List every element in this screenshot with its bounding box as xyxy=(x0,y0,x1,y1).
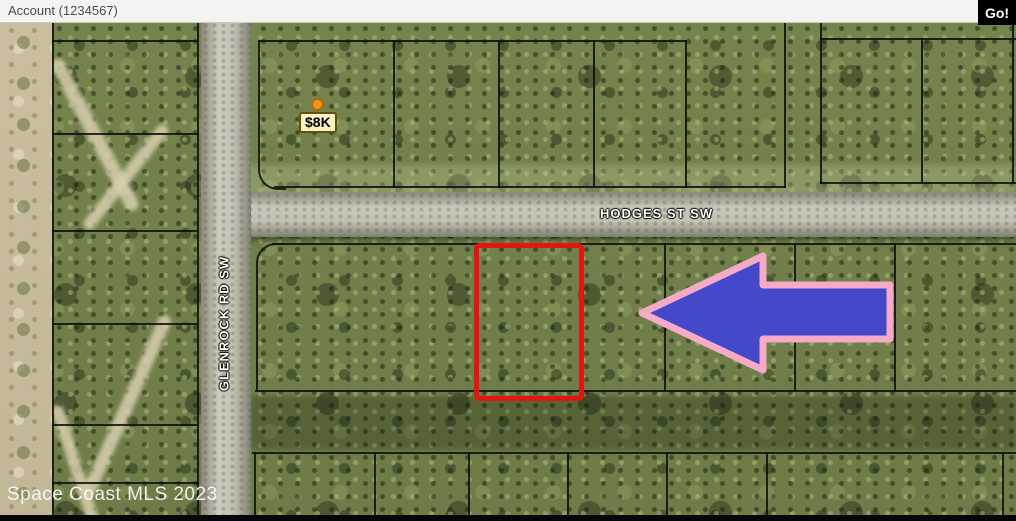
parcel-line xyxy=(1002,452,1004,515)
parcel-line xyxy=(784,22,786,188)
tree-shadow-band xyxy=(251,396,1016,450)
parcel-line xyxy=(794,243,796,392)
parcel-line xyxy=(894,243,896,392)
parcel-line xyxy=(1012,22,1014,184)
parcel-line xyxy=(393,40,395,188)
parcel-line xyxy=(468,452,470,515)
parcel-line xyxy=(197,22,199,515)
go-button[interactable]: Go! xyxy=(978,0,1016,25)
parcel-line xyxy=(52,424,199,426)
parcel-line xyxy=(254,452,256,515)
bottom-letterbox xyxy=(0,515,1016,521)
sandy-area xyxy=(0,22,52,521)
parcel-line xyxy=(52,22,54,515)
parcel-corner xyxy=(258,40,286,190)
parcel-line xyxy=(820,38,1016,40)
parcel-corner xyxy=(256,243,284,392)
parcel-line xyxy=(666,452,668,515)
parcel-line xyxy=(272,243,1016,245)
parcel-line xyxy=(374,452,376,515)
grass-band xyxy=(240,165,1016,193)
parcel-line xyxy=(52,323,199,325)
parcel-line xyxy=(52,230,199,232)
arrow-shape xyxy=(642,256,890,370)
dirt-trail xyxy=(49,57,141,214)
parcel-line xyxy=(820,22,822,184)
parcel-line xyxy=(820,182,1016,184)
account-label: Account (1234567) xyxy=(8,0,118,21)
parcel-line xyxy=(567,452,569,515)
street-label-hodges: HODGES ST SW xyxy=(600,206,713,221)
parcel-line xyxy=(498,40,500,188)
parcel-line xyxy=(664,243,666,392)
parcel-line xyxy=(685,40,687,188)
subject-parcel-outline xyxy=(474,243,584,401)
parcel-line xyxy=(593,40,595,188)
price-marker-label[interactable]: $8K xyxy=(299,112,337,133)
parcel-line xyxy=(766,452,768,515)
map-canvas[interactable]: HODGES ST SW GLENROCK RD SW $8K Space Co… xyxy=(0,22,1016,521)
parcel-line xyxy=(274,186,786,188)
mls-watermark: Space Coast MLS 2023 xyxy=(7,484,218,506)
street-label-glenrock: GLENROCK RD SW xyxy=(217,244,232,404)
parcel-line xyxy=(255,390,1016,392)
parcel-line xyxy=(252,452,1016,454)
parcel-line xyxy=(52,133,199,135)
price-marker-dot[interactable] xyxy=(311,98,324,111)
top-bar: Account (1234567) xyxy=(0,0,1016,23)
parcel-line xyxy=(52,40,199,42)
dirt-trail xyxy=(80,313,173,501)
parcel-line xyxy=(258,40,687,42)
parcel-line xyxy=(921,38,923,184)
